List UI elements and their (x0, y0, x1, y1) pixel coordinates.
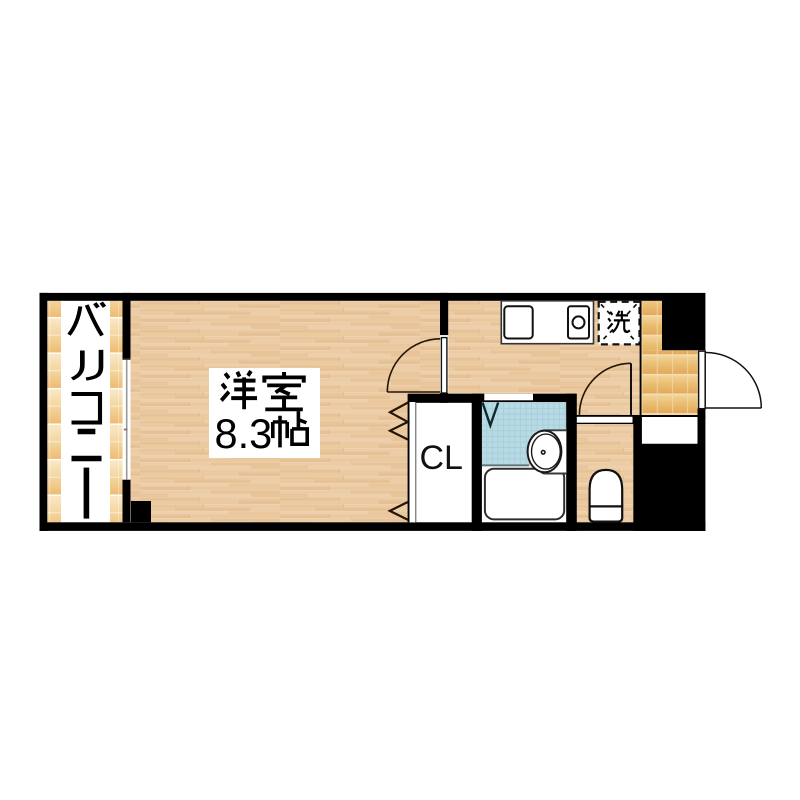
svg-text:8.3: 8.3 (215, 410, 273, 457)
svg-text:CL: CL (420, 439, 463, 477)
